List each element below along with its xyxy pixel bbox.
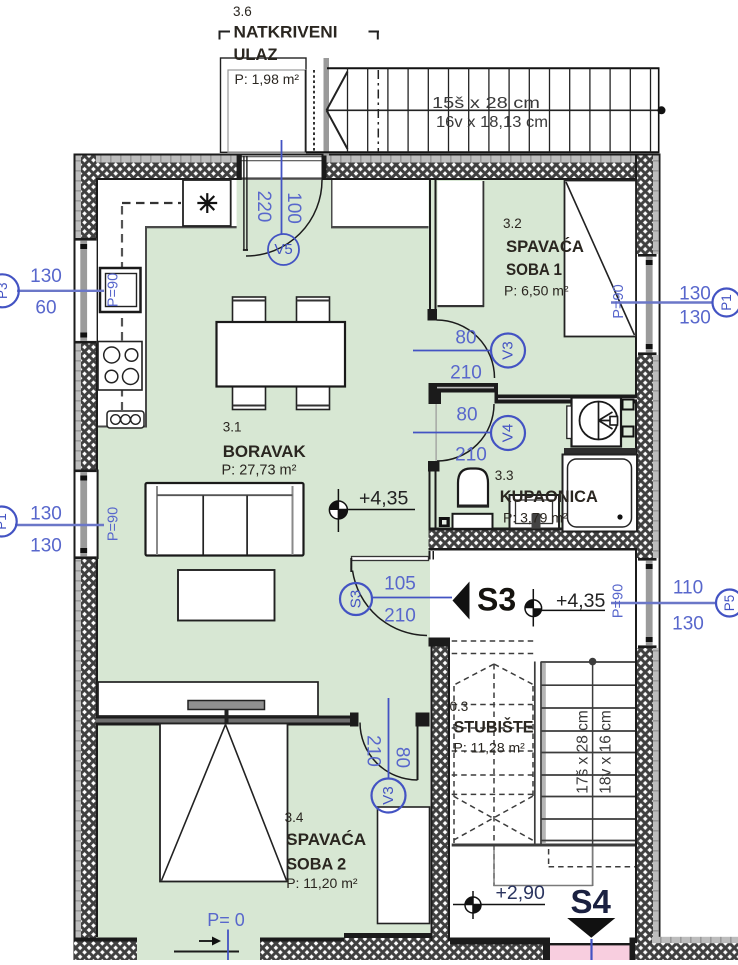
svg-text:3.1: 3.1: [223, 420, 242, 435]
svg-text:+2,90: +2,90: [496, 882, 545, 904]
svg-text:15š x 28 cm: 15š x 28 cm: [432, 95, 540, 112]
svg-text:P: 1,98 m²: P: 1,98 m²: [235, 71, 300, 87]
svg-text:0.3: 0.3: [450, 699, 469, 714]
svg-text:P1: P1: [719, 294, 734, 311]
svg-text:210: 210: [363, 735, 384, 767]
svg-text:3.4: 3.4: [285, 810, 304, 825]
svg-text:P: 6,50 m²: P: 6,50 m²: [504, 283, 569, 299]
svg-text:80: 80: [456, 405, 477, 426]
svg-text:NATKRIVENI: NATKRIVENI: [234, 23, 338, 42]
svg-text:P3: P3: [0, 283, 10, 300]
svg-text:P1: P1: [0, 513, 9, 530]
svg-text:130: 130: [30, 504, 62, 525]
svg-text:130: 130: [30, 266, 62, 287]
svg-text:+4,35: +4,35: [556, 590, 605, 612]
svg-text:P= 0: P= 0: [207, 910, 245, 930]
svg-text:SOBA 1: SOBA 1: [506, 261, 562, 279]
svg-text:220: 220: [253, 191, 274, 223]
svg-text:SOBA 2: SOBA 2: [286, 856, 346, 874]
svg-text:✳: ✳: [196, 189, 218, 219]
svg-text:3.2: 3.2: [503, 216, 522, 231]
svg-text:P: 27,73 m²: P: 27,73 m²: [222, 463, 297, 479]
svg-text:16v x 18,13 cm: 16v x 18,13 cm: [436, 114, 548, 131]
svg-text:130: 130: [672, 614, 704, 635]
svg-text:18v x 16 cm: 18v x 16 cm: [598, 710, 615, 794]
svg-text:+4,35: +4,35: [359, 488, 408, 510]
svg-text:S3: S3: [477, 582, 516, 618]
svg-text:130: 130: [679, 284, 711, 305]
svg-text:130: 130: [30, 536, 62, 557]
svg-text:SPAVAĆA: SPAVAĆA: [286, 830, 366, 849]
svg-text:P=90: P=90: [611, 584, 627, 618]
svg-text:P5: P5: [722, 595, 737, 612]
svg-text:P: 3,79 m²: P: 3,79 m²: [503, 510, 568, 526]
svg-text:60: 60: [35, 298, 56, 319]
svg-text:STUBIŠTE: STUBIŠTE: [454, 718, 534, 737]
svg-text:SPAVAĆA: SPAVAĆA: [506, 237, 584, 256]
svg-text:V5: V5: [274, 241, 292, 258]
svg-text:80: 80: [455, 328, 476, 349]
svg-text:BORAVAK: BORAVAK: [223, 442, 307, 461]
svg-text:V3: V3: [500, 341, 517, 359]
svg-text:210: 210: [384, 606, 416, 627]
svg-text:3.6: 3.6: [233, 4, 252, 19]
svg-text:P=90: P=90: [106, 273, 122, 307]
svg-text:P: 11,20 m²: P: 11,20 m²: [286, 875, 358, 891]
svg-text:210: 210: [450, 363, 482, 384]
svg-text:110: 110: [673, 578, 703, 599]
svg-text:V3: V3: [380, 786, 397, 804]
svg-text:P=90: P=90: [106, 507, 122, 541]
svg-text:KUPAONICA: KUPAONICA: [500, 488, 598, 506]
svg-text:S4: S4: [571, 883, 612, 920]
svg-text:P=90: P=90: [611, 284, 627, 318]
svg-text:ULAZ: ULAZ: [234, 45, 278, 64]
svg-text:100: 100: [283, 192, 304, 224]
svg-text:P: 11,28 m²: P: 11,28 m²: [454, 740, 526, 756]
svg-text:105: 105: [384, 574, 416, 595]
svg-text:210: 210: [455, 445, 487, 466]
svg-text:3.3: 3.3: [495, 468, 514, 483]
svg-text:130: 130: [679, 308, 711, 329]
svg-text:V4: V4: [500, 424, 517, 442]
svg-text:17š x 28 cm: 17š x 28 cm: [575, 710, 592, 794]
svg-text:S3: S3: [348, 590, 365, 608]
svg-text:80: 80: [392, 747, 413, 768]
